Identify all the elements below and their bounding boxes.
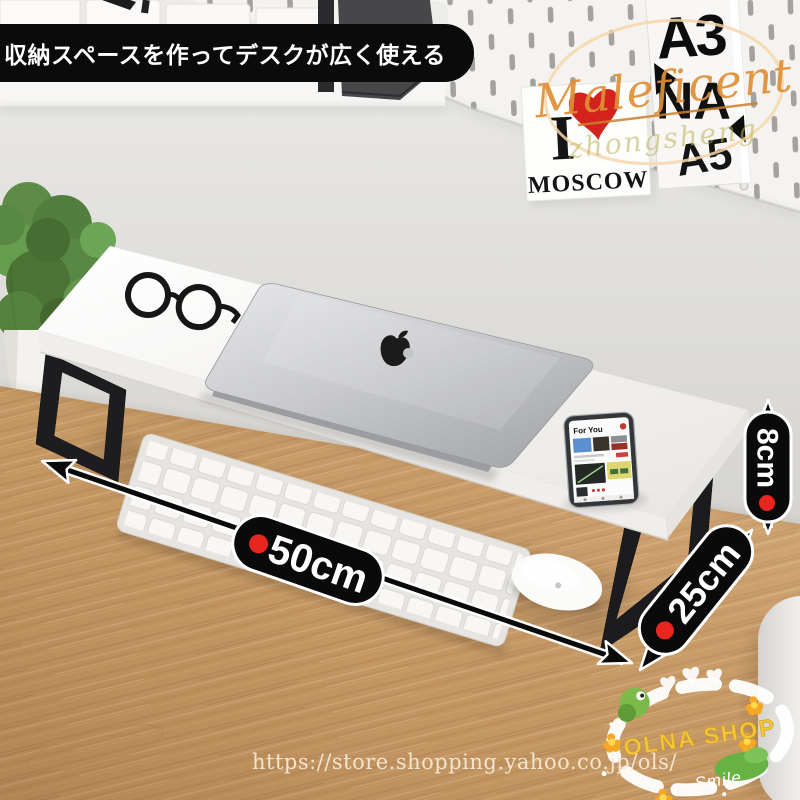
- phone: For You: [557, 411, 648, 514]
- product-photo: I MOSCOW A3 NA A5: [0, 0, 800, 800]
- headline-text: 収納スペースを作ってデスクが広く使える: [4, 36, 446, 70]
- dimension-height: 8cm: [745, 400, 791, 534]
- scene: I MOSCOW A3 NA A5: [0, 0, 800, 800]
- headline-banner: 収納スペースを作ってデスクが広く使える: [0, 24, 474, 82]
- storage-box: [0, 0, 80, 27]
- red-dot-icon: [759, 495, 775, 511]
- store-url: https://store.shopping.yahoo.co.jp/ols/: [252, 750, 677, 774]
- height-capsule: 8cm: [745, 412, 791, 522]
- height-label: 8cm: [751, 428, 784, 488]
